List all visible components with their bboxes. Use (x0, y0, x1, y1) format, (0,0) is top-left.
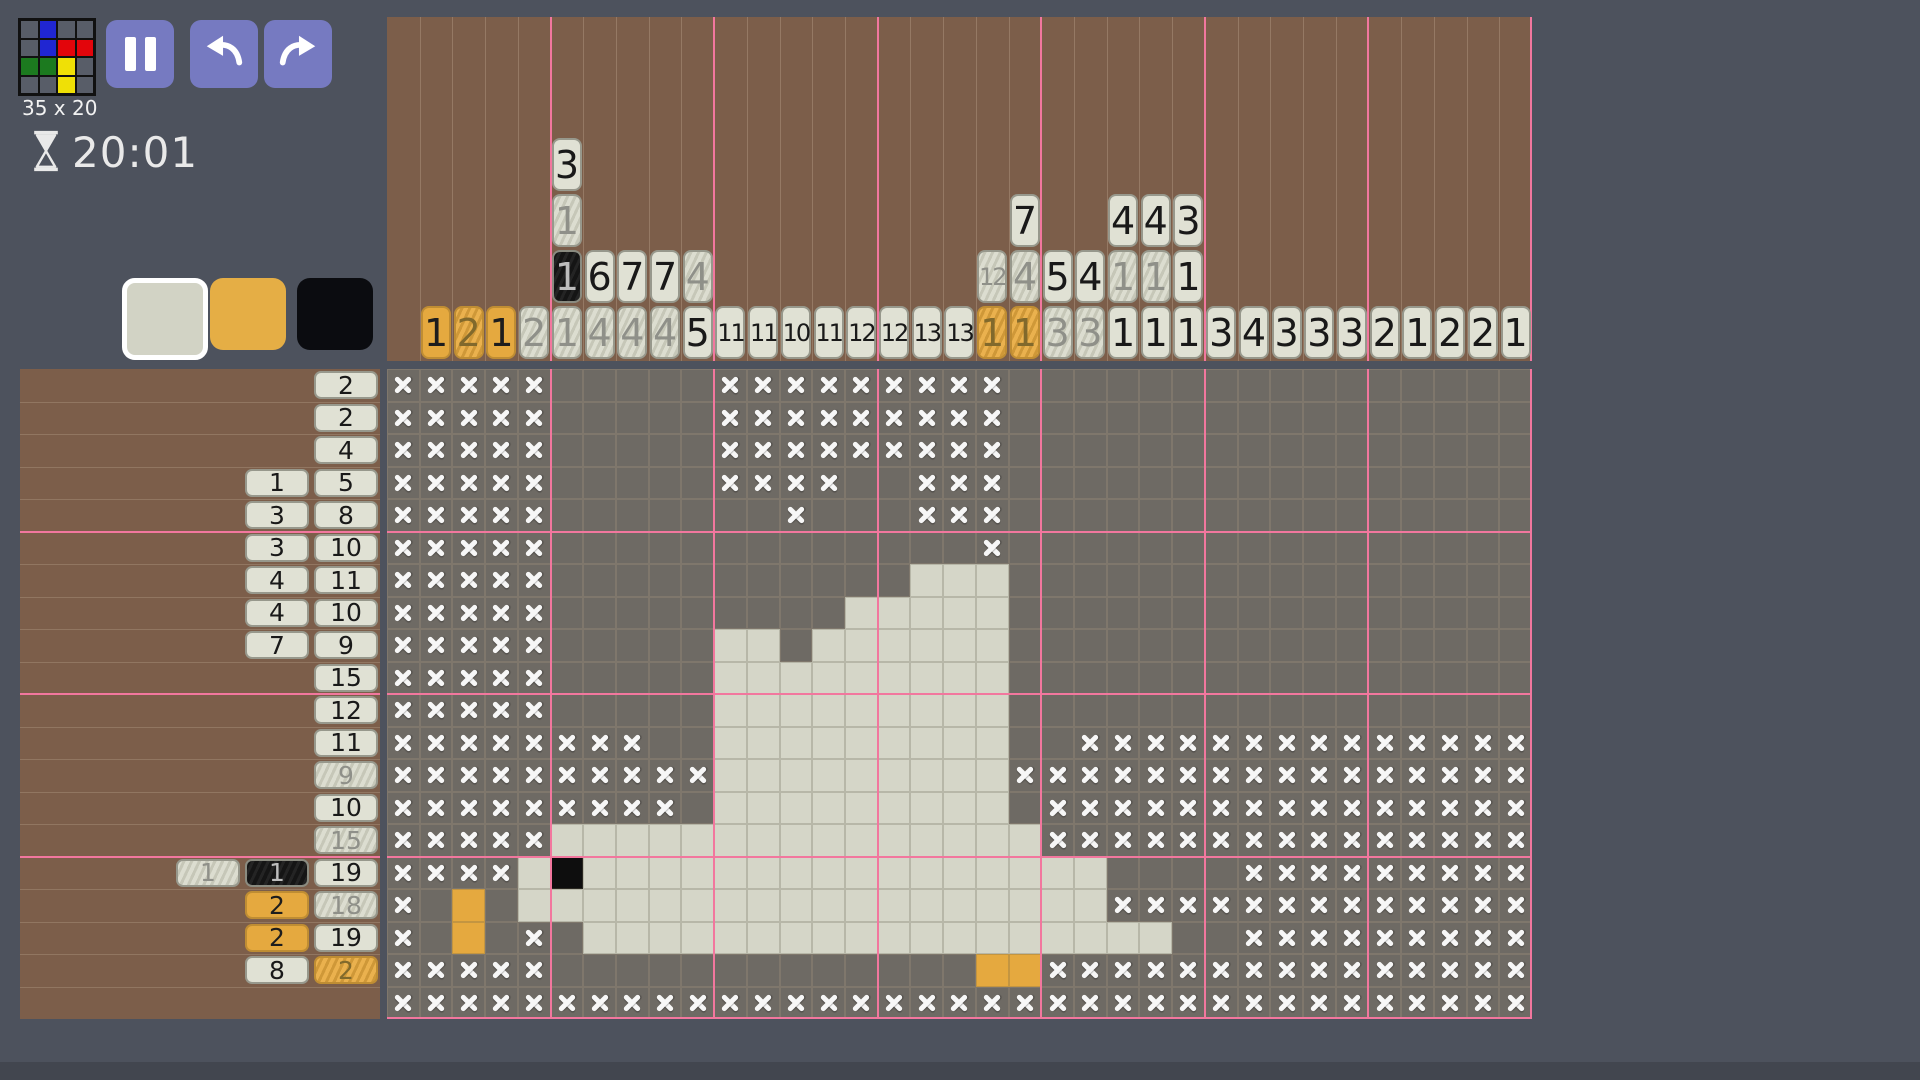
board-cell[interactable] (1336, 434, 1369, 467)
board-cell[interactable] (1074, 402, 1107, 435)
row-clue[interactable]: 9 (314, 761, 378, 789)
board-cell[interactable] (1172, 727, 1205, 760)
row-clue[interactable]: 11 (314, 566, 378, 594)
board-cell[interactable] (681, 954, 714, 987)
board-cell[interactable] (616, 402, 649, 435)
board-cell[interactable] (714, 564, 747, 597)
board-cell[interactable] (1139, 694, 1172, 727)
board-cell[interactable] (1139, 402, 1172, 435)
row-clue[interactable]: 2 (245, 924, 309, 952)
board-cell[interactable] (1041, 467, 1074, 500)
board-cell[interactable] (485, 434, 518, 467)
board-cell[interactable] (1107, 662, 1140, 695)
column-clue[interactable]: 1 (1141, 306, 1171, 359)
board-cell[interactable] (1303, 857, 1336, 890)
board-cell[interactable] (1041, 532, 1074, 565)
board-cell[interactable] (1467, 499, 1500, 532)
board-cell[interactable] (649, 954, 682, 987)
board-cell[interactable] (583, 597, 616, 630)
board-cell[interactable] (1041, 369, 1074, 402)
board-cell[interactable] (1467, 727, 1500, 760)
board-cell[interactable] (1303, 824, 1336, 857)
board-cell[interactable] (1270, 434, 1303, 467)
board-cell[interactable] (1401, 564, 1434, 597)
board-cell[interactable] (780, 727, 813, 760)
board-cell[interactable] (452, 662, 485, 695)
board-cell[interactable] (1074, 532, 1107, 565)
board-cell[interactable] (1107, 987, 1140, 1020)
row-clue[interactable]: 2 (245, 891, 309, 919)
board-cell[interactable] (420, 434, 453, 467)
board-cell[interactable] (747, 662, 780, 695)
board-cell[interactable] (583, 369, 616, 402)
row-clue[interactable]: 10 (314, 794, 378, 822)
board-cell[interactable] (452, 402, 485, 435)
column-clue[interactable]: 3 (1272, 306, 1302, 359)
board-cell[interactable] (420, 987, 453, 1020)
board-cell[interactable] (714, 402, 747, 435)
board-cell[interactable] (452, 727, 485, 760)
board-cell[interactable] (420, 792, 453, 825)
board-cell[interactable] (616, 369, 649, 402)
board-cell[interactable] (1041, 857, 1074, 890)
column-clue[interactable]: 1 (552, 194, 582, 247)
board-cell[interactable] (485, 597, 518, 630)
board-cell[interactable] (1401, 662, 1434, 695)
board-cell[interactable] (1238, 954, 1271, 987)
board-cell[interactable] (910, 824, 943, 857)
board-cell[interactable] (649, 564, 682, 597)
board-cell[interactable] (649, 402, 682, 435)
board-cell[interactable] (976, 922, 1009, 955)
board-cell[interactable] (518, 402, 551, 435)
board-cell[interactable] (518, 759, 551, 792)
row-clue[interactable]: 10 (314, 599, 378, 627)
board-cell[interactable] (910, 889, 943, 922)
board-cell[interactable] (812, 499, 845, 532)
board-cell[interactable] (681, 889, 714, 922)
board-cell[interactable] (583, 727, 616, 760)
board-cell[interactable] (1107, 369, 1140, 402)
row-clue[interactable]: 4 (245, 599, 309, 627)
board-cell[interactable] (518, 369, 551, 402)
board-cell[interactable] (943, 532, 976, 565)
board-cell[interactable] (943, 759, 976, 792)
board-cell[interactable] (551, 629, 584, 662)
board-cell[interactable] (1041, 662, 1074, 695)
board-cell[interactable] (976, 369, 1009, 402)
board-cell[interactable] (1336, 629, 1369, 662)
board-cell[interactable] (1401, 499, 1434, 532)
board-cell[interactable] (551, 792, 584, 825)
board-cell[interactable] (1401, 922, 1434, 955)
board-cell[interactable] (1205, 402, 1238, 435)
board-cell[interactable] (387, 402, 420, 435)
board-cell[interactable] (1368, 694, 1401, 727)
board-cell[interactable] (1401, 694, 1434, 727)
board-cell[interactable] (714, 954, 747, 987)
board-cell[interactable] (1041, 954, 1074, 987)
board-cell[interactable] (1238, 434, 1271, 467)
board-cell[interactable] (1041, 564, 1074, 597)
board-cell[interactable] (714, 499, 747, 532)
board-cell[interactable] (1434, 954, 1467, 987)
board-cell[interactable] (1238, 629, 1271, 662)
board-cell[interactable] (878, 889, 911, 922)
board-cell[interactable] (551, 532, 584, 565)
board-cell[interactable] (616, 499, 649, 532)
board-cell[interactable] (747, 987, 780, 1020)
board-cell[interactable] (1041, 727, 1074, 760)
board-cell[interactable] (518, 597, 551, 630)
board-cell[interactable] (1336, 889, 1369, 922)
board-cell[interactable] (1434, 532, 1467, 565)
board-cell[interactable] (1467, 662, 1500, 695)
board-cell[interactable] (714, 824, 747, 857)
board-cell[interactable] (1499, 792, 1532, 825)
row-clue[interactable]: 11 (314, 729, 378, 757)
board-cell[interactable] (1303, 727, 1336, 760)
board-cell[interactable] (420, 369, 453, 402)
board-cell[interactable] (583, 889, 616, 922)
board-cell[interactable] (420, 694, 453, 727)
board-cell[interactable] (518, 727, 551, 760)
board-cell[interactable] (878, 402, 911, 435)
board-cell[interactable] (518, 662, 551, 695)
board-cell[interactable] (1041, 889, 1074, 922)
board-cell[interactable] (1270, 759, 1303, 792)
board-cell[interactable] (1270, 889, 1303, 922)
board-cell[interactable] (485, 629, 518, 662)
board-cell[interactable] (910, 694, 943, 727)
board-cell[interactable] (485, 532, 518, 565)
board-cell[interactable] (780, 759, 813, 792)
board-cell[interactable] (1434, 824, 1467, 857)
board-cell[interactable] (1499, 402, 1532, 435)
pause-button[interactable] (106, 20, 174, 88)
board-cell[interactable] (387, 889, 420, 922)
board-cell[interactable] (1401, 597, 1434, 630)
board-cell[interactable] (878, 499, 911, 532)
board-cell[interactable] (1368, 792, 1401, 825)
board-cell[interactable] (551, 564, 584, 597)
board-cell[interactable] (1368, 564, 1401, 597)
board-cell[interactable] (1107, 532, 1140, 565)
board-cell[interactable] (387, 922, 420, 955)
board-cell[interactable] (1139, 792, 1172, 825)
board-cell[interactable] (1499, 954, 1532, 987)
board-cell[interactable] (747, 564, 780, 597)
board-cell[interactable] (1205, 564, 1238, 597)
board-cell[interactable] (1139, 889, 1172, 922)
board-cell[interactable] (1401, 434, 1434, 467)
board-cell[interactable] (878, 434, 911, 467)
board-cell[interactable] (616, 597, 649, 630)
board-cell[interactable] (387, 629, 420, 662)
board-cell[interactable] (1205, 662, 1238, 695)
board-cell[interactable] (616, 759, 649, 792)
board-cell[interactable] (878, 564, 911, 597)
board-cell[interactable] (420, 499, 453, 532)
board-cell[interactable] (976, 792, 1009, 825)
board-cell[interactable] (910, 857, 943, 890)
board-cell[interactable] (747, 759, 780, 792)
row-clue[interactable]: 1 (245, 469, 309, 497)
board-cell[interactable] (387, 792, 420, 825)
board-cell[interactable] (1303, 662, 1336, 695)
board-cell[interactable] (551, 467, 584, 500)
board-cell[interactable] (583, 987, 616, 1020)
board-cell[interactable] (1303, 369, 1336, 402)
board-cell[interactable] (1107, 434, 1140, 467)
board-cell[interactable] (878, 467, 911, 500)
board-cell[interactable] (1368, 597, 1401, 630)
board-cell[interactable] (681, 792, 714, 825)
board-cell[interactable] (452, 954, 485, 987)
board-cell[interactable] (681, 727, 714, 760)
board-cell[interactable] (878, 824, 911, 857)
board-cell[interactable] (420, 402, 453, 435)
board-cell[interactable] (1499, 499, 1532, 532)
board-cell[interactable] (583, 467, 616, 500)
board-cell[interactable] (845, 369, 878, 402)
board-cell[interactable] (812, 694, 845, 727)
board-cell[interactable] (681, 922, 714, 955)
board-cell[interactable] (1238, 987, 1271, 1020)
board-cell[interactable] (485, 499, 518, 532)
board-cell[interactable] (1139, 824, 1172, 857)
board-cell[interactable] (518, 629, 551, 662)
board-cell[interactable] (1368, 824, 1401, 857)
board-cell[interactable] (1107, 467, 1140, 500)
row-clue[interactable]: 19 (314, 924, 378, 952)
board-cell[interactable] (1009, 792, 1042, 825)
board-cell[interactable] (1368, 532, 1401, 565)
board-cell[interactable] (714, 694, 747, 727)
row-clue[interactable]: 7 (245, 631, 309, 659)
board-cell[interactable] (878, 987, 911, 1020)
board-cell[interactable] (518, 499, 551, 532)
board-cell[interactable] (485, 889, 518, 922)
board-cell[interactable] (1499, 857, 1532, 890)
board-cell[interactable] (943, 954, 976, 987)
row-clue[interactable]: 10 (314, 534, 378, 562)
board-cell[interactable] (910, 402, 943, 435)
board-cell[interactable] (747, 499, 780, 532)
board-cell[interactable] (943, 922, 976, 955)
board-cell[interactable] (1467, 954, 1500, 987)
board-cell[interactable] (1205, 434, 1238, 467)
board-cell[interactable] (1270, 727, 1303, 760)
board-cell[interactable] (485, 857, 518, 890)
board-cell[interactable] (1467, 694, 1500, 727)
board-cell[interactable] (1074, 922, 1107, 955)
board-cell[interactable] (845, 759, 878, 792)
board-cell[interactable] (387, 954, 420, 987)
board-cell[interactable] (1041, 434, 1074, 467)
board-cell[interactable] (1205, 824, 1238, 857)
board-cell[interactable] (1368, 727, 1401, 760)
board-cell[interactable] (452, 857, 485, 890)
board-cell[interactable] (747, 369, 780, 402)
board-cell[interactable] (452, 922, 485, 955)
board-cell[interactable] (943, 499, 976, 532)
board-cell[interactable] (943, 727, 976, 760)
board-cell[interactable] (681, 597, 714, 630)
board-cell[interactable] (485, 792, 518, 825)
board-cell[interactable] (845, 597, 878, 630)
column-clue[interactable]: 1 (421, 306, 451, 359)
board-cell[interactable] (616, 889, 649, 922)
board-cell[interactable] (1336, 727, 1369, 760)
column-clue[interactable]: 4 (1141, 194, 1171, 247)
column-clue[interactable]: 3 (1206, 306, 1236, 359)
board-cell[interactable] (1303, 629, 1336, 662)
board-cell[interactable] (681, 564, 714, 597)
board-cell[interactable] (1238, 564, 1271, 597)
board-cell[interactable] (1499, 629, 1532, 662)
board-cell[interactable] (1303, 499, 1336, 532)
board-cell[interactable] (1499, 922, 1532, 955)
board-cell[interactable] (1009, 759, 1042, 792)
board-cell[interactable] (1434, 792, 1467, 825)
board-cell[interactable] (943, 629, 976, 662)
board-cell[interactable] (1467, 597, 1500, 630)
board-cell[interactable] (452, 597, 485, 630)
board-cell[interactable] (1303, 597, 1336, 630)
board-cell[interactable] (1368, 922, 1401, 955)
board-cell[interactable] (551, 694, 584, 727)
board-cell[interactable] (1074, 499, 1107, 532)
board-cell[interactable] (485, 922, 518, 955)
board-cell[interactable] (616, 857, 649, 890)
board-cell[interactable] (485, 662, 518, 695)
board-cell[interactable] (1238, 792, 1271, 825)
board-cell[interactable] (910, 792, 943, 825)
board-cell[interactable] (485, 727, 518, 760)
board-cell[interactable] (1303, 694, 1336, 727)
board-cell[interactable] (452, 532, 485, 565)
board-cell[interactable] (681, 467, 714, 500)
board-cell[interactable] (1401, 792, 1434, 825)
board-cell[interactable] (649, 532, 682, 565)
board-cell[interactable] (616, 824, 649, 857)
board-cell[interactable] (910, 987, 943, 1020)
board-cell[interactable] (845, 954, 878, 987)
board-cell[interactable] (649, 727, 682, 760)
board-cell[interactable] (583, 532, 616, 565)
board-cell[interactable] (1467, 564, 1500, 597)
board-cell[interactable] (1074, 954, 1107, 987)
board-cell[interactable] (616, 467, 649, 500)
column-clue[interactable]: 5 (1043, 250, 1073, 303)
board-cell[interactable] (1041, 597, 1074, 630)
board-cell[interactable] (1467, 532, 1500, 565)
board-cell[interactable] (1434, 434, 1467, 467)
board-cell[interactable] (1074, 369, 1107, 402)
board-cell[interactable] (1467, 467, 1500, 500)
board-cell[interactable] (485, 824, 518, 857)
row-clue[interactable]: 12 (314, 696, 378, 724)
board-cell[interactable] (518, 564, 551, 597)
board-cell[interactable] (1139, 369, 1172, 402)
board-cell[interactable] (910, 532, 943, 565)
board-cell[interactable] (616, 434, 649, 467)
board-cell[interactable] (1009, 954, 1042, 987)
board-cell[interactable] (1401, 369, 1434, 402)
board-cell[interactable] (878, 662, 911, 695)
board-cell[interactable] (878, 629, 911, 662)
board-cell[interactable] (976, 889, 1009, 922)
board-cell[interactable] (452, 499, 485, 532)
board-cell[interactable] (1172, 954, 1205, 987)
board-cell[interactable] (878, 694, 911, 727)
board-cell[interactable] (1499, 564, 1532, 597)
board-cell[interactable] (1401, 629, 1434, 662)
board-cell[interactable] (780, 987, 813, 1020)
board-cell[interactable] (1238, 727, 1271, 760)
board-cell[interactable] (420, 564, 453, 597)
board-cell[interactable] (387, 434, 420, 467)
column-clue[interactable]: 4 (585, 306, 615, 359)
board-cell[interactable] (1107, 499, 1140, 532)
board-cell[interactable] (649, 369, 682, 402)
board-cell[interactable] (878, 792, 911, 825)
board-cell[interactable] (1270, 694, 1303, 727)
board-cell[interactable] (452, 824, 485, 857)
board-cell[interactable] (976, 759, 1009, 792)
board-cell[interactable] (681, 759, 714, 792)
board-cell[interactable] (1368, 759, 1401, 792)
board-cell[interactable] (780, 662, 813, 695)
board-cell[interactable] (1074, 434, 1107, 467)
board-cell[interactable] (845, 824, 878, 857)
board-cell[interactable] (845, 499, 878, 532)
board-cell[interactable] (1467, 987, 1500, 1020)
board-cell[interactable] (1401, 759, 1434, 792)
column-clue[interactable]: 11 (715, 306, 745, 359)
board-cell[interactable] (649, 694, 682, 727)
board-cell[interactable] (1467, 889, 1500, 922)
column-clue[interactable]: 1 (1501, 306, 1531, 359)
column-clue[interactable]: 1 (1173, 250, 1203, 303)
board-cell[interactable] (1434, 694, 1467, 727)
board-cell[interactable] (1434, 889, 1467, 922)
palette-swatch-white[interactable] (122, 278, 208, 360)
column-clue[interactable]: 10 (781, 306, 811, 359)
board-cell[interactable] (616, 532, 649, 565)
board-cell[interactable] (1368, 467, 1401, 500)
board-cell[interactable] (1467, 759, 1500, 792)
board-cell[interactable] (616, 954, 649, 987)
board-cell[interactable] (1434, 727, 1467, 760)
column-clue[interactable]: 7 (1010, 194, 1040, 247)
row-clue[interactable]: 18 (314, 891, 378, 919)
board-cell[interactable] (1303, 792, 1336, 825)
board-cell[interactable] (1499, 532, 1532, 565)
board-cell[interactable] (976, 694, 1009, 727)
board-cell[interactable] (681, 824, 714, 857)
board-cell[interactable] (1368, 499, 1401, 532)
board-cell[interactable] (485, 564, 518, 597)
row-clue[interactable]: 4 (245, 566, 309, 594)
board-cell[interactable] (1401, 402, 1434, 435)
board-cell[interactable] (1336, 662, 1369, 695)
board-cell[interactable] (943, 857, 976, 890)
board-cell[interactable] (910, 727, 943, 760)
board-cell[interactable] (1336, 402, 1369, 435)
board-cell[interactable] (1009, 857, 1042, 890)
